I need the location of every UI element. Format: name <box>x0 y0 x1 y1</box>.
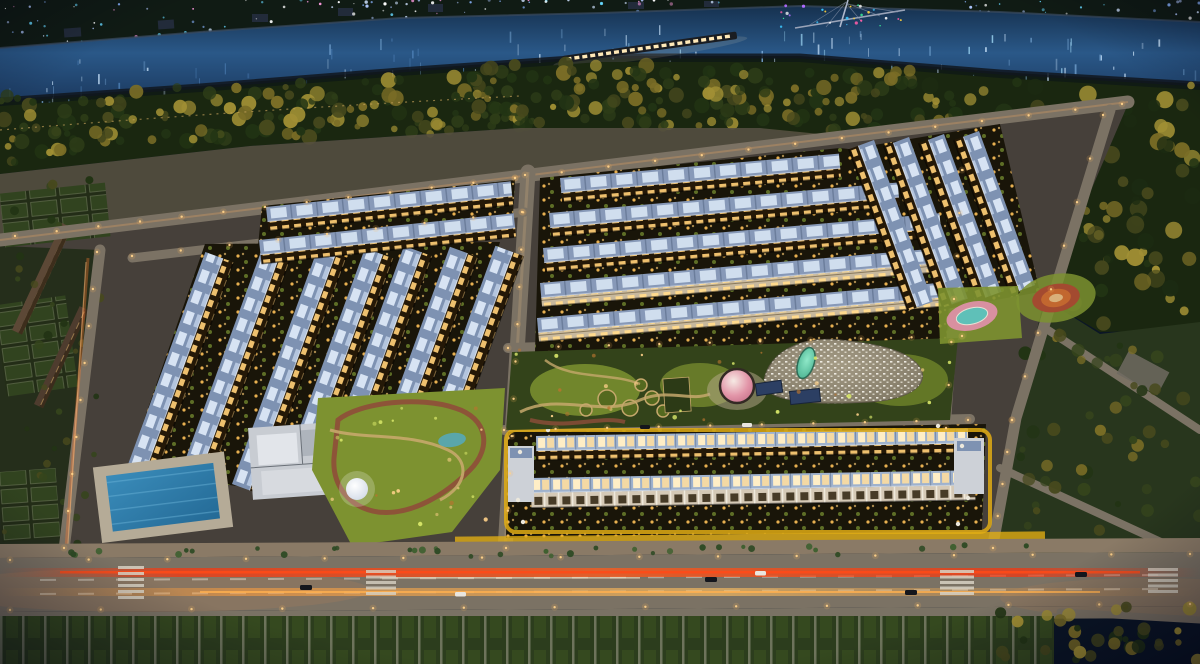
vignette-overlay <box>0 0 1200 664</box>
aerial-render-masterplan <box>0 0 1200 664</box>
